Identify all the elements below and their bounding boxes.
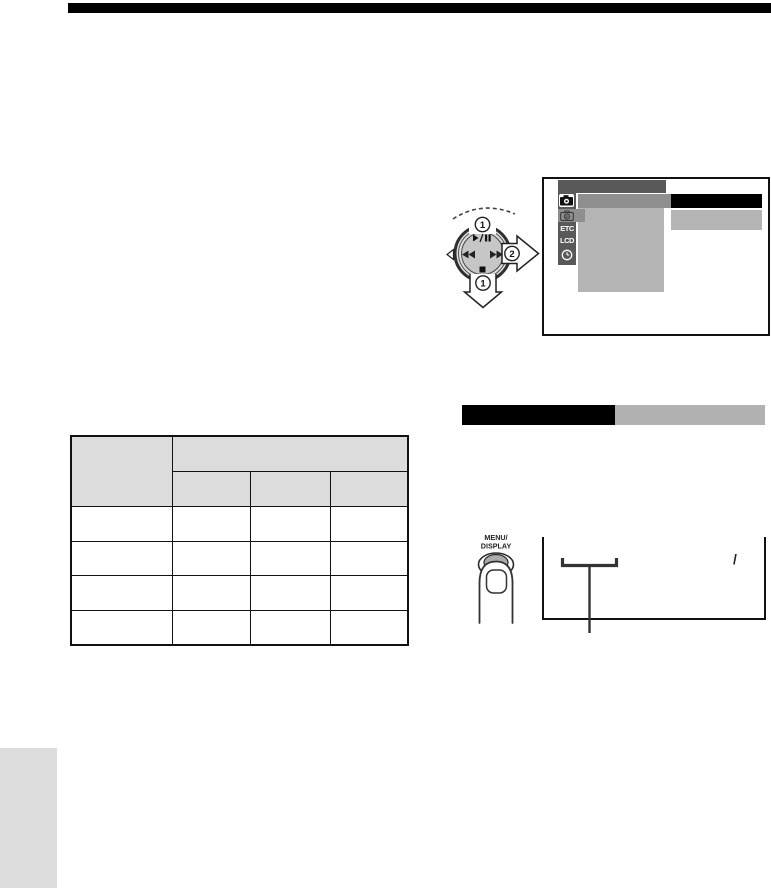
step1-number: 1 <box>480 220 486 231</box>
menu-value-subpanel <box>671 210 762 230</box>
table-cell <box>330 507 408 542</box>
menu-screen-mockup: P ETC LCD <box>542 177 770 336</box>
table-cell <box>330 541 408 576</box>
table-cell <box>330 576 408 611</box>
fingernail <box>487 570 507 593</box>
table-cell <box>250 610 330 645</box>
sidebar-item-etc: ETC <box>558 224 576 234</box>
table-cell <box>172 610 250 645</box>
camera-program-icon: P <box>560 210 574 221</box>
section-header-gray <box>615 405 765 425</box>
table-cell <box>172 507 250 542</box>
menu-selected-value <box>671 194 762 208</box>
sidebar-item-lcd: LCD <box>558 236 576 246</box>
table-cell <box>71 576 172 611</box>
table-row <box>71 610 408 645</box>
page-edge-tab <box>0 748 57 888</box>
menu-content-panel <box>578 208 664 292</box>
button-label-line2: DISPLAY <box>481 542 512 551</box>
table-cell <box>71 507 172 542</box>
table-row <box>71 576 408 611</box>
section-header-black <box>462 405 615 425</box>
step1-top-marker: 1 <box>469 214 496 234</box>
table-cell <box>71 541 172 576</box>
table-cell <box>250 541 330 576</box>
table-row <box>71 541 408 576</box>
top-rule <box>68 3 771 13</box>
table-cell <box>172 576 250 611</box>
step2-number: 2 <box>509 249 514 260</box>
menu-display-button-callout: MENU/ DISPLAY <box>450 528 520 628</box>
manual-page: 1 1 2 <box>0 0 771 896</box>
spec-table <box>70 435 409 646</box>
step1-bottom-arrow: 1 <box>465 274 502 308</box>
table-cell <box>250 576 330 611</box>
table-subheader-2 <box>250 472 330 507</box>
camera-icon <box>559 194 574 207</box>
table-subheader-3 <box>330 472 408 507</box>
dial-left-notch <box>447 250 454 260</box>
table-cell <box>250 507 330 542</box>
step1b-number: 1 <box>480 279 486 290</box>
table-cell <box>330 610 408 645</box>
table-subheader-1 <box>172 472 250 507</box>
table-cell <box>172 541 250 576</box>
menu-row1-highlight <box>578 194 671 208</box>
table-group-header <box>172 436 408 472</box>
control-dial-diagram: 1 1 2 <box>432 195 544 315</box>
table-cell <box>71 610 172 645</box>
table-row <box>71 507 408 542</box>
slash-indicator: / <box>733 551 737 567</box>
callout-bracket <box>552 550 632 640</box>
stop-icon <box>480 267 486 273</box>
table-corner-header <box>71 436 172 507</box>
camera-icon-box <box>559 194 574 207</box>
clock-icon <box>561 249 573 261</box>
